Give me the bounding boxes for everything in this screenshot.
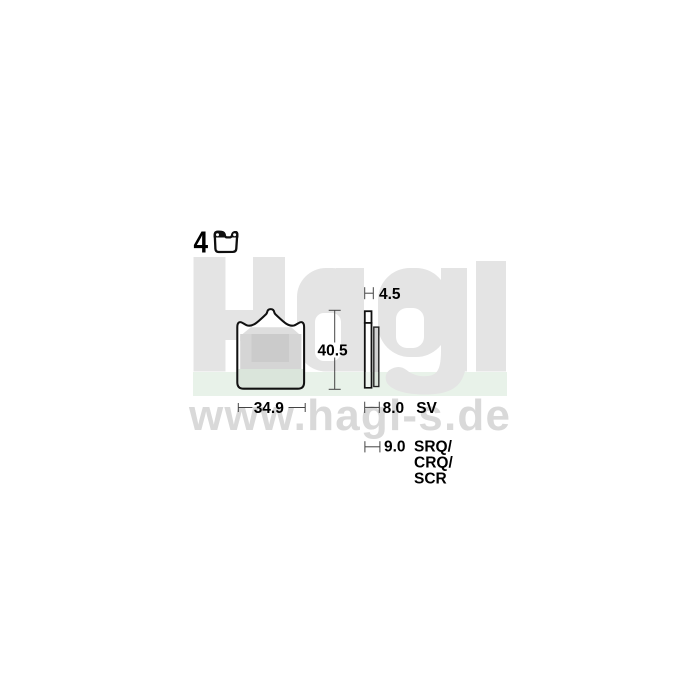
svg-text:8.0: 8.0 <box>383 400 405 417</box>
svg-text:34.9: 34.9 <box>254 400 285 417</box>
svg-text:www.hagl-s.de: www.hagl-s.de <box>188 391 510 440</box>
svg-text:SV: SV <box>416 400 437 417</box>
svg-text:9.0: 9.0 <box>384 439 406 456</box>
svg-text:40.5: 40.5 <box>318 343 349 360</box>
svg-text:4.5: 4.5 <box>379 286 401 303</box>
svg-text:SRQ/: SRQ/ <box>414 439 453 456</box>
svg-text:CRQ/: CRQ/ <box>414 455 453 472</box>
svg-text:4: 4 <box>194 225 209 259</box>
svg-text:SCR: SCR <box>414 470 447 487</box>
